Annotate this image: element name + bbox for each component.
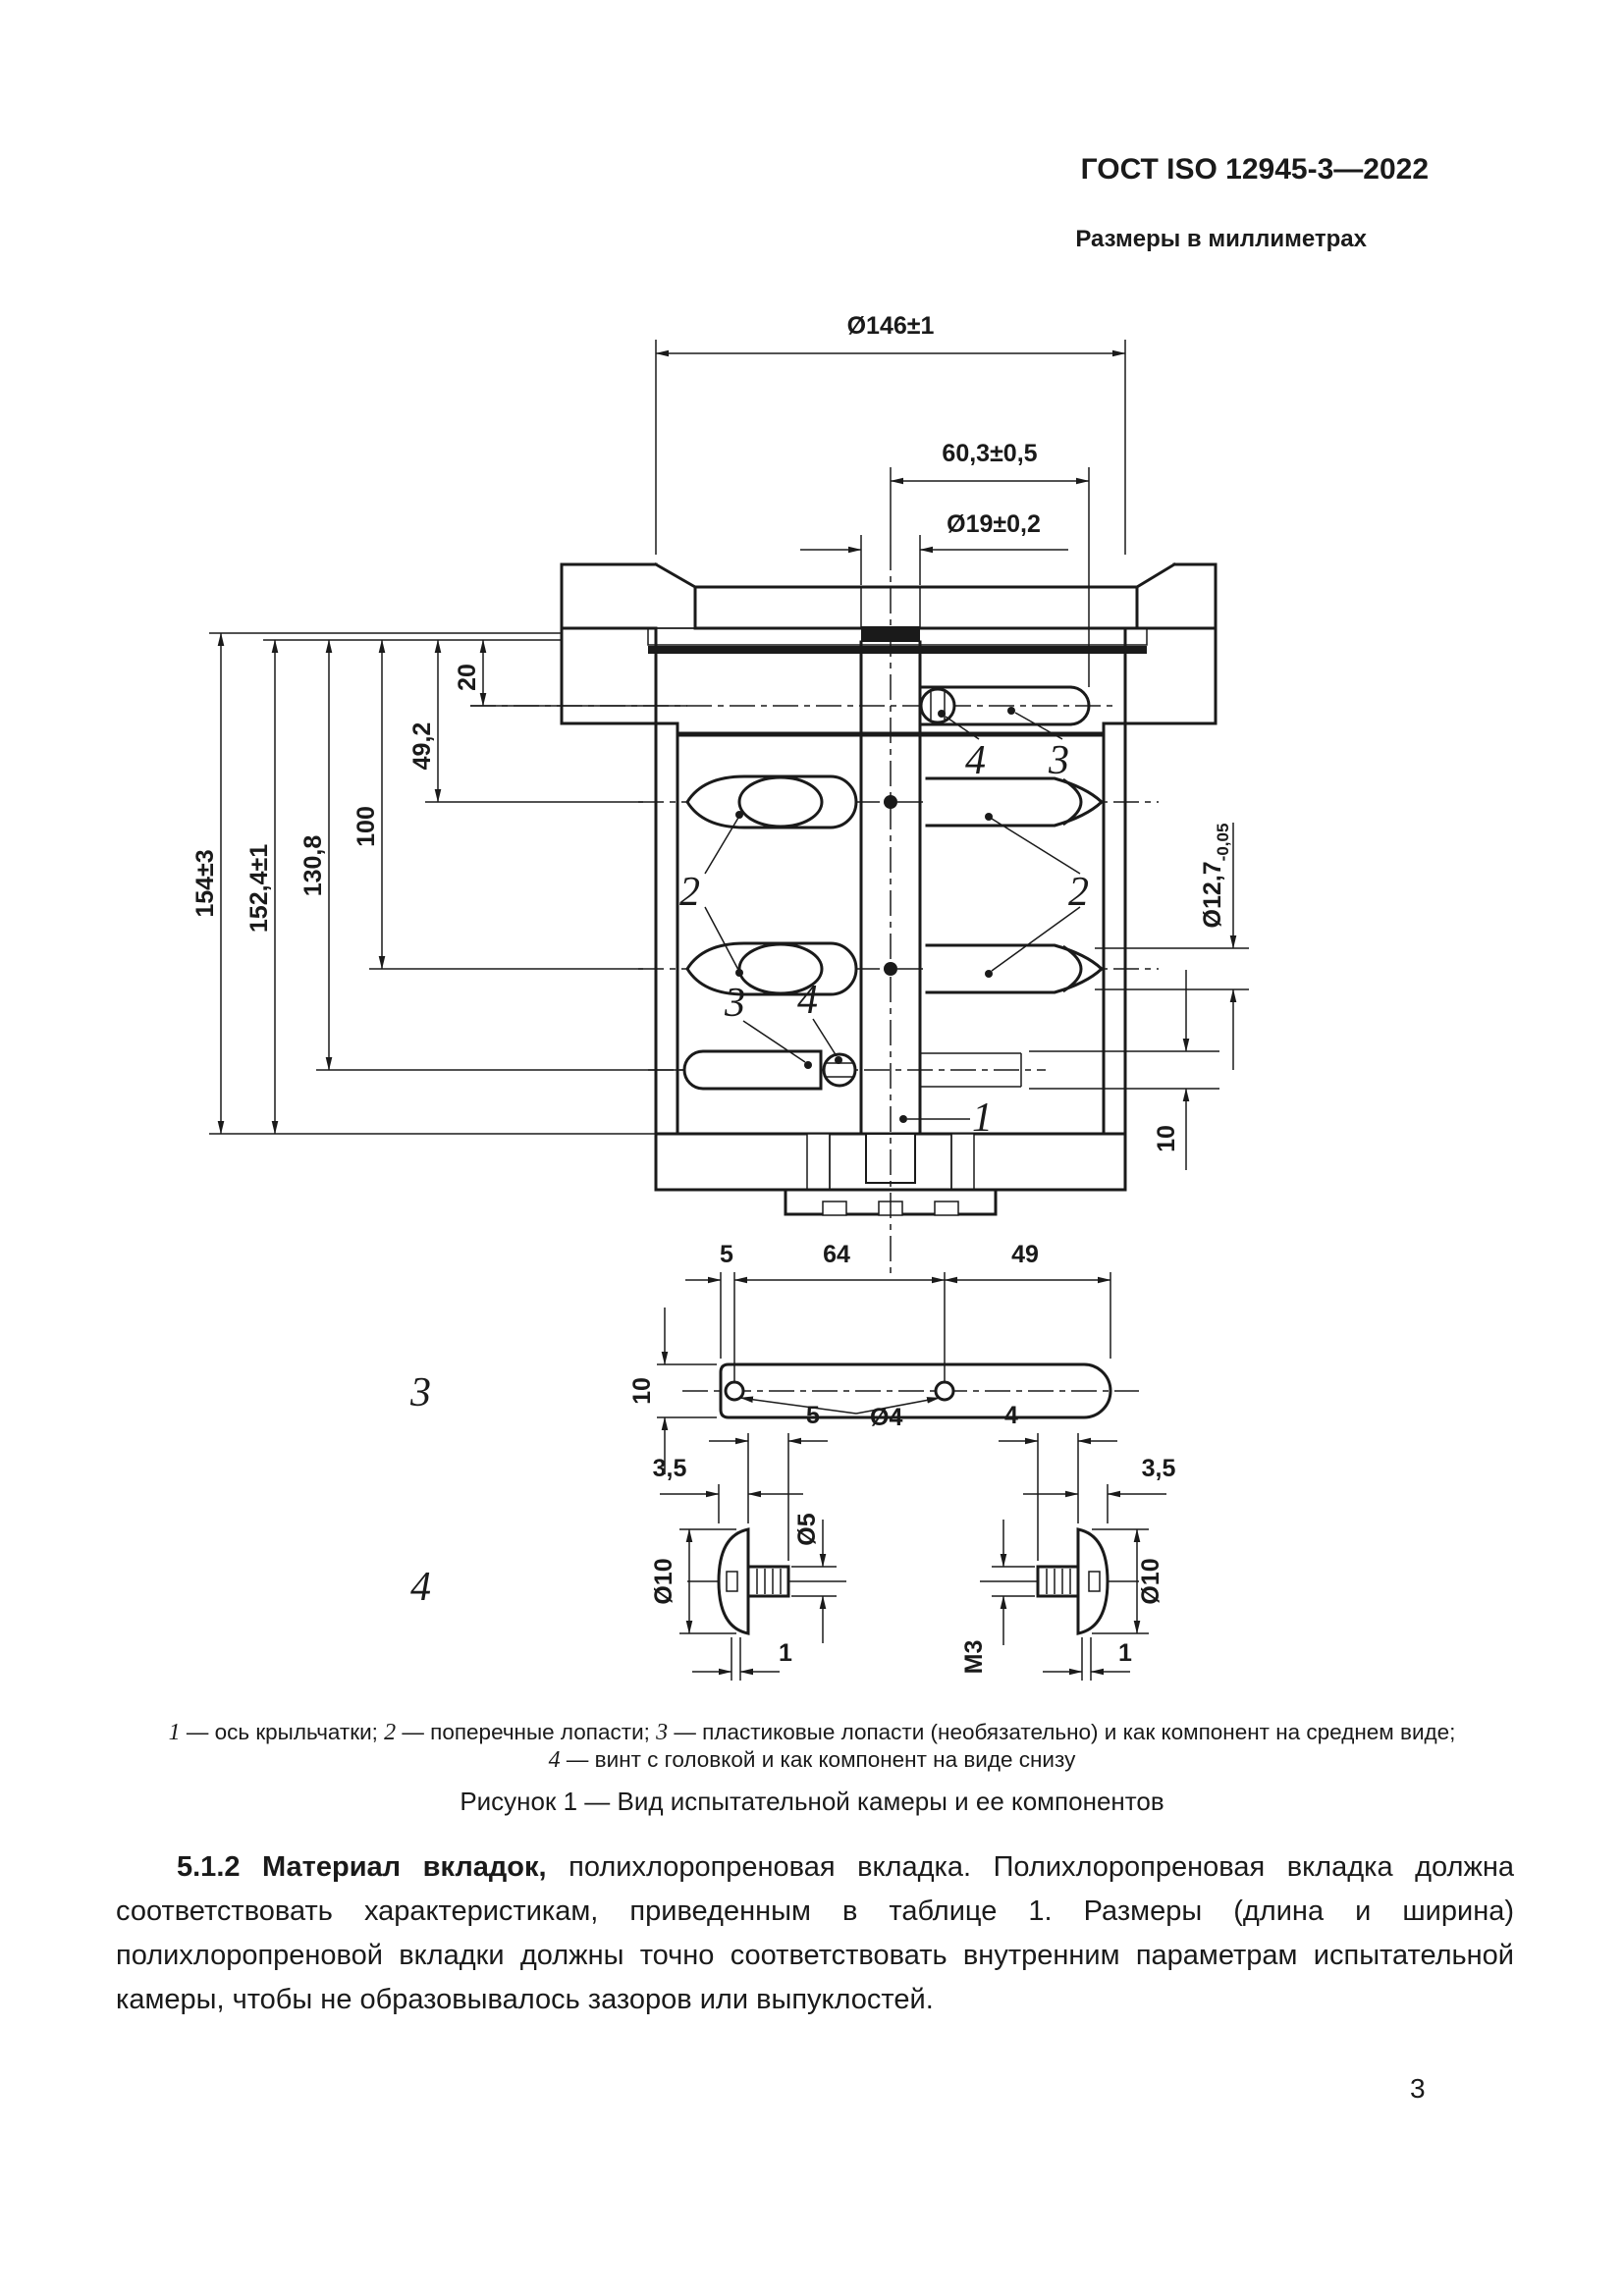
svg-text:64: 64 (823, 1241, 850, 1268)
blade-view-label: 3 (409, 1370, 431, 1415)
screw-view-label: 4 (410, 1565, 431, 1610)
screw-right: 4 3,5 Ø10 M3 (960, 1402, 1175, 1681)
dim-shaft-dia: Ø12,7-0,05 (1095, 823, 1249, 1070)
svg-text:100: 100 (352, 806, 380, 847)
document-page: ГОСТ ISO 12945-3—2022 Размеры в миллимет… (0, 0, 1624, 2296)
svg-text:10: 10 (1153, 1125, 1180, 1152)
screw-left: 5 3,5 Ø5 Ø10 (650, 1402, 846, 1681)
svg-text:1: 1 (1118, 1639, 1132, 1667)
svg-text:49: 49 (1011, 1241, 1039, 1268)
lid-section (562, 564, 1216, 723)
svg-text:Ø146±1: Ø146±1 (847, 312, 935, 340)
page-number: 3 (1410, 2073, 1426, 2105)
svg-text:3,5: 3,5 (1142, 1455, 1176, 1482)
ref-label-axis: 1 (972, 1095, 993, 1141)
svg-text:Ø12,7-0,05: Ø12,7-0,05 (1199, 824, 1232, 929)
clause-title: 5.1.2 Материал вкладок, (177, 1851, 547, 1883)
figure-legend-line2: 4 — винт с головкой и как компонент на в… (0, 1747, 1624, 1774)
svg-text:Ø19±0,2: Ø19±0,2 (947, 510, 1041, 538)
figure-caption: Рисунок 1 — Вид испытательной камеры и е… (0, 1787, 1624, 1817)
dim-heights: 154±3 152,4±1 130,8 100 49,2 20 (191, 633, 687, 1134)
svg-text:154±3: 154±3 (191, 849, 219, 917)
dim-shaft-hole: Ø19±0,2 (800, 510, 1068, 585)
svg-text:Ø10: Ø10 (650, 1558, 677, 1604)
figure-legend-line1: 1 — ось крыльчатки; 2 — поперечные лопас… (0, 1720, 1624, 1746)
svg-text:Ø10: Ø10 (1137, 1558, 1164, 1604)
svg-text:49,2: 49,2 (408, 722, 436, 771)
cross-blade-row-lower (687, 943, 1102, 994)
ref-label-cross-left: 2 (679, 870, 700, 915)
svg-text:4: 4 (1004, 1402, 1018, 1429)
svg-text:Ø4: Ø4 (870, 1404, 902, 1431)
blade-view: 3 5 64 49 10 (409, 1241, 1139, 1474)
ref-label-cross-right: 2 (1068, 870, 1089, 915)
lid-disc (695, 587, 1137, 628)
svg-text:3,5: 3,5 (653, 1455, 687, 1482)
legend-ref-4: 4 (549, 1747, 561, 1773)
svg-text:5: 5 (720, 1241, 733, 1268)
clause-5-1-2: 5.1.2 Материал вкладок, полихлоропренова… (116, 1845, 1514, 2022)
ref-label-blade-top: 3 (1048, 738, 1069, 783)
svg-text:5: 5 (806, 1402, 820, 1429)
legend-ref-3: 3 (656, 1720, 668, 1745)
legend-ref-1: 1 (169, 1720, 181, 1745)
legend-ref-2: 2 (384, 1720, 396, 1745)
cross-blade-row-upper (687, 776, 1102, 828)
ref-label-screw-bottom: 4 (797, 978, 818, 1023)
svg-text:M3: M3 (960, 1640, 988, 1675)
main-view: 4 3 2 2 3 4 1 Ø146±1 60,3±0,5 (191, 312, 1249, 1276)
ref-label-screw-top: 4 (965, 738, 986, 783)
svg-text:130,8: 130,8 (299, 835, 327, 897)
ref-label-blade-bottom: 3 (724, 981, 745, 1026)
svg-text:152,4±1: 152,4±1 (245, 844, 273, 933)
svg-text:60,3±0,5: 60,3±0,5 (942, 440, 1037, 467)
svg-text:1: 1 (779, 1639, 792, 1667)
svg-text:20: 20 (454, 664, 481, 691)
svg-text:10: 10 (628, 1377, 656, 1405)
svg-text:Ø5: Ø5 (793, 1513, 821, 1545)
screw-view: 4 5 3,5 (410, 1402, 1175, 1681)
